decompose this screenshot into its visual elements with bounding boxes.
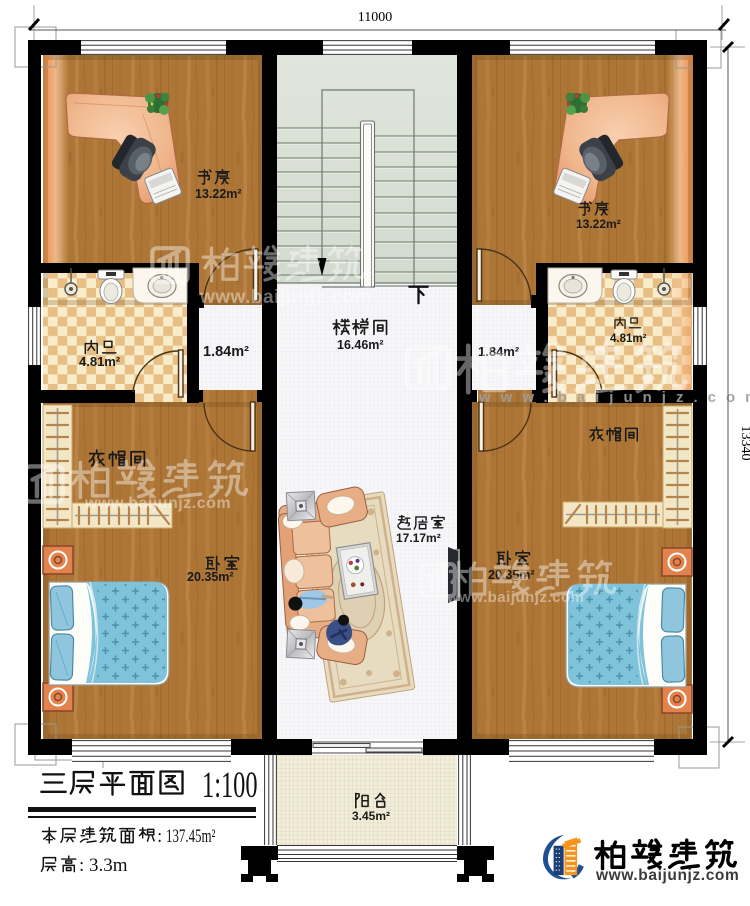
svg-text:13340: 13340 — [738, 426, 750, 461]
svg-text:www.baijunjz.com: www.baijunjz.com — [199, 287, 372, 308]
svg-text:www.baijunjz.com: www.baijunjz.com — [84, 495, 231, 512]
svg-text:www.baijunjz.com: www.baijunjz.com — [478, 389, 750, 406]
svg-text:: 3.3m: : 3.3m — [79, 855, 128, 876]
svg-text:4.81m²: 4.81m² — [79, 354, 121, 369]
svg-text:20.35m²: 20.35m² — [187, 570, 234, 584]
svg-text:137.45m²: 137.45m² — [166, 826, 216, 847]
svg-text:17.17m²: 17.17m² — [396, 531, 441, 545]
svg-text:11000: 11000 — [358, 10, 392, 25]
svg-text:16.46m²: 16.46m² — [337, 338, 384, 352]
svg-text:13.22m²: 13.22m² — [576, 217, 621, 231]
svg-text:1:100: 1:100 — [202, 764, 258, 805]
svg-text:13.22m²: 13.22m² — [195, 187, 242, 201]
svg-text:www.baijunjz.com: www.baijunjz.com — [595, 867, 739, 884]
svg-text:www.baijunjz.com: www.baijunjz.com — [446, 589, 584, 606]
svg-text:3.45m²: 3.45m² — [352, 809, 390, 823]
svg-text::: : — [157, 826, 162, 847]
svg-text:4.81m²: 4.81m² — [610, 333, 647, 345]
svg-text:1.84m²: 1.84m² — [203, 344, 249, 360]
